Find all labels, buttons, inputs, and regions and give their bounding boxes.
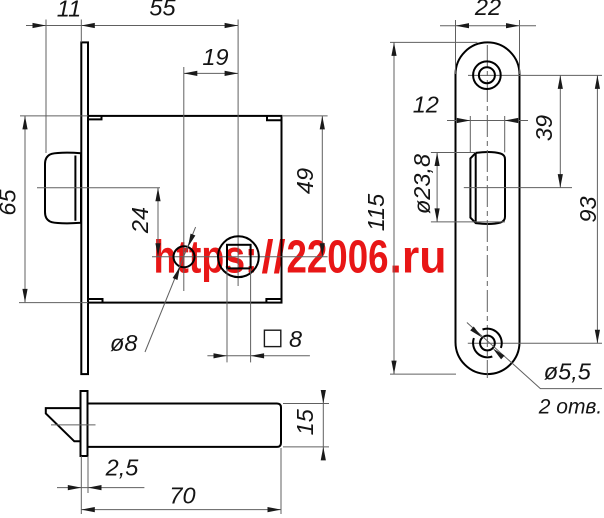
- svg-text:8: 8: [289, 326, 302, 352]
- svg-text:24: 24: [127, 207, 153, 234]
- svg-text:65: 65: [0, 189, 21, 216]
- svg-text:115: 115: [363, 193, 389, 231]
- svg-text:70: 70: [169, 483, 195, 509]
- svg-text:ø8: ø8: [110, 330, 137, 356]
- svg-text:.ru: .ru: [390, 231, 447, 283]
- svg-text:39: 39: [531, 115, 557, 141]
- svg-text:93: 93: [575, 196, 601, 222]
- svg-text:2,5: 2,5: [105, 455, 140, 481]
- svg-text:19: 19: [202, 44, 228, 70]
- svg-text:12: 12: [413, 92, 439, 118]
- svg-text:15: 15: [292, 408, 318, 435]
- svg-text:2 отв.: 2 отв.: [538, 396, 602, 419]
- svg-text:ø5,5: ø5,5: [544, 359, 592, 385]
- svg-text:55: 55: [149, 0, 176, 21]
- svg-text:11: 11: [57, 0, 81, 22]
- svg-text:22: 22: [474, 0, 501, 20]
- svg-text:49: 49: [292, 168, 318, 194]
- svg-text:ø23,8: ø23,8: [409, 154, 435, 214]
